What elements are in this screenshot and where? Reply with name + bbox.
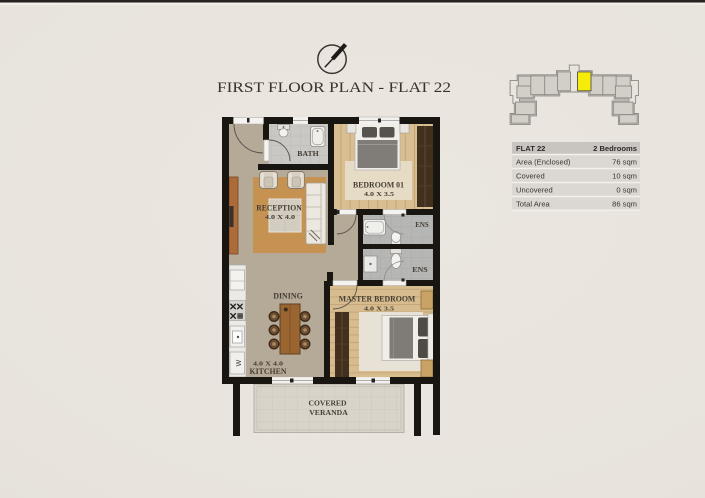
svg-text:Area (Enclosed): Area (Enclosed) bbox=[516, 158, 571, 167]
svg-text:Total Area: Total Area bbox=[516, 200, 551, 209]
svg-text:KITCHEN: KITCHEN bbox=[250, 367, 287, 376]
svg-text:2 Bedrooms: 2 Bedrooms bbox=[593, 144, 637, 153]
svg-text:Covered: Covered bbox=[516, 172, 545, 181]
svg-text:4.0 X 4.0: 4.0 X 4.0 bbox=[265, 214, 295, 221]
svg-text:BATH: BATH bbox=[297, 149, 319, 158]
svg-text:MASTER BEDROOM: MASTER BEDROOM bbox=[339, 295, 416, 304]
svg-text:4.0 X 3.5: 4.0 X 3.5 bbox=[364, 191, 395, 198]
svg-text:76 sqm: 76 sqm bbox=[612, 158, 637, 167]
svg-text:Uncovered: Uncovered bbox=[516, 186, 553, 195]
svg-text:DINING: DINING bbox=[273, 291, 303, 301]
svg-text:4.0 X 3.5: 4.0 X 3.5 bbox=[364, 306, 395, 313]
svg-text:W: W bbox=[236, 359, 243, 366]
svg-text:10 sqm: 10 sqm bbox=[612, 172, 637, 181]
svg-text:FIRST FLOOR PLAN - FLAT 22: FIRST FLOOR PLAN - FLAT 22 bbox=[217, 80, 451, 96]
svg-text:COVERED: COVERED bbox=[309, 399, 348, 408]
svg-text:BEDROOM 01: BEDROOM 01 bbox=[353, 181, 404, 190]
svg-text:0 sqm: 0 sqm bbox=[616, 186, 637, 195]
svg-text:86 sqm: 86 sqm bbox=[612, 200, 637, 209]
svg-text:RECEPTION: RECEPTION bbox=[256, 203, 302, 213]
svg-text:ENS: ENS bbox=[415, 221, 429, 229]
svg-text:VERANDA: VERANDA bbox=[309, 408, 348, 417]
svg-text:FLAT 22: FLAT 22 bbox=[516, 144, 545, 153]
svg-text:ENS: ENS bbox=[412, 266, 428, 274]
